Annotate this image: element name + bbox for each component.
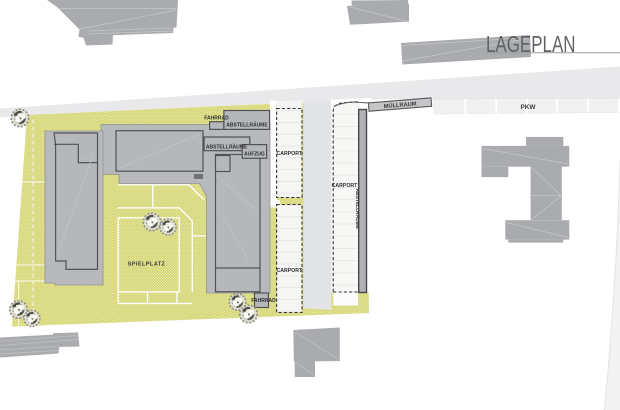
svg-text:SPIELPLATZ: SPIELPLATZ xyxy=(128,262,166,268)
svg-text:ABSTELLRÄUME: ABSTELLRÄUME xyxy=(226,122,268,129)
svg-text:FAHRRAD: FAHRRAD xyxy=(251,298,276,304)
svg-text:PKW: PKW xyxy=(521,104,537,111)
svg-text:ABSTELLRÄUME: ABSTELLRÄUME xyxy=(206,143,248,150)
svg-text:FAHRRAD: FAHRRAD xyxy=(204,115,229,121)
svg-text:CARPORT: CARPORT xyxy=(276,268,302,274)
svg-text:ABSTELLRÄUME: ABSTELLRÄUME xyxy=(354,189,361,230)
svg-text:CARPORT: CARPORT xyxy=(276,151,302,157)
svg-text:CARPORT: CARPORT xyxy=(332,183,358,189)
svg-text:AUFZUG: AUFZUG xyxy=(244,151,265,157)
